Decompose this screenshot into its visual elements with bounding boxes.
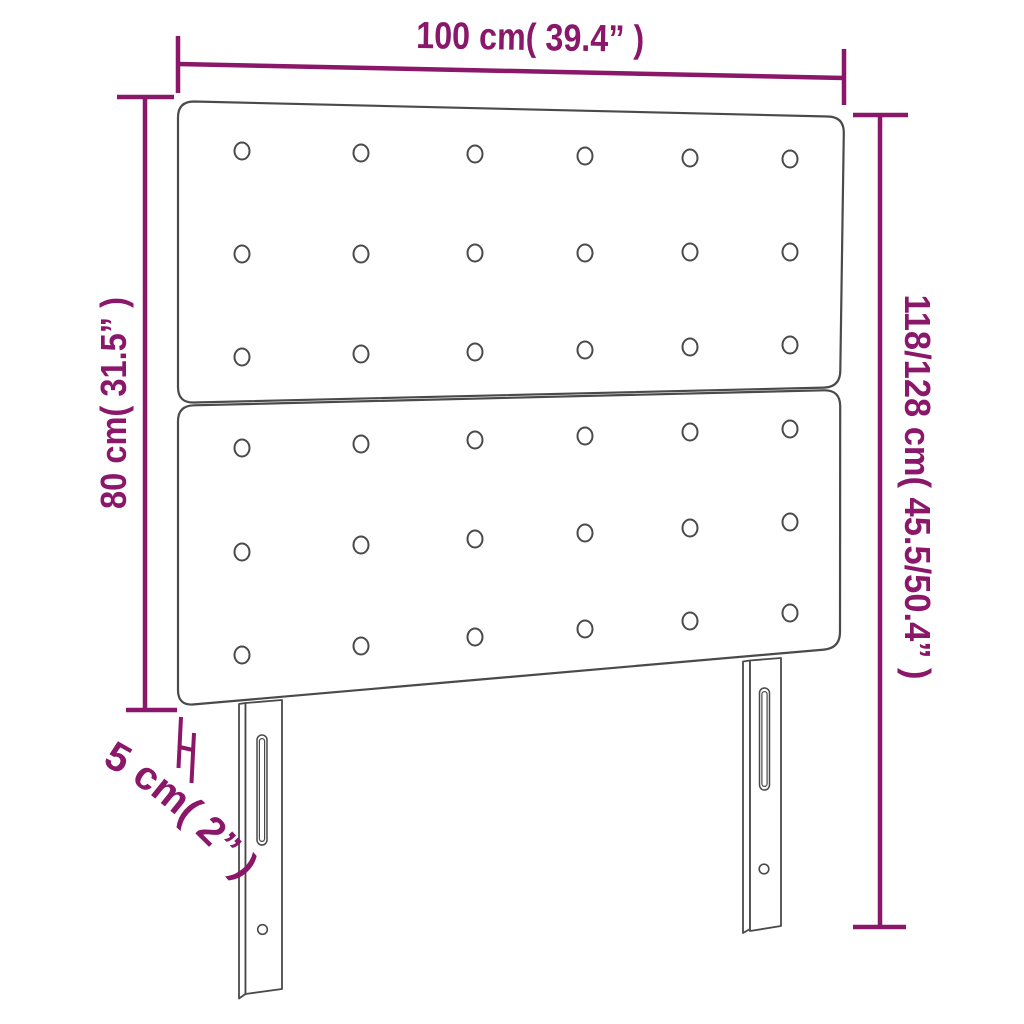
- tufting-button: [235, 349, 250, 366]
- legs-group: [239, 658, 781, 999]
- leg-depth-crossbar: [180, 747, 194, 750]
- tufting-button: [783, 514, 798, 531]
- tufting-button: [683, 424, 698, 441]
- tufting-button: [468, 245, 483, 262]
- right-leg-front-face: [750, 658, 781, 931]
- tufting-button: [235, 647, 250, 664]
- right-leg: [743, 658, 781, 933]
- tufting-button: [354, 145, 369, 162]
- tufting-button: [578, 148, 593, 165]
- tufting-button: [354, 246, 369, 263]
- tufting-button: [235, 544, 250, 561]
- tufting-button: [783, 151, 798, 168]
- tufting-button: [783, 337, 798, 354]
- tufting-button: [354, 638, 369, 655]
- total-height-dimension-label: 118/128 cm( 45.5/50.4” ): [897, 295, 938, 680]
- leg-depth-tick-b: [192, 733, 195, 783]
- tufting-button: [783, 421, 798, 438]
- tufting-button: [683, 150, 698, 167]
- tufting-button: [578, 245, 593, 262]
- board-height-dimension-label: 80 cm( 31.5” ): [93, 297, 134, 509]
- tufting-button: [235, 246, 250, 263]
- headboard-dimension-diagram: 100 cm( 39.4” ) 118/128 cm( 45.5/50.4” )…: [0, 0, 1024, 1024]
- tufting-button: [683, 244, 698, 261]
- tufting-button: [783, 244, 798, 261]
- headboard-group: [178, 102, 844, 705]
- leg-depth-dimension: [179, 717, 195, 783]
- tufting-button: [578, 428, 593, 445]
- tufting-button: [354, 436, 369, 453]
- tufting-button: [468, 531, 483, 548]
- headboard-top-panel: [178, 102, 844, 403]
- tufting-button: [783, 605, 798, 622]
- tufting-button: [683, 613, 698, 630]
- tufting-button: [683, 520, 698, 537]
- tufting-button: [468, 432, 483, 449]
- tufting-button: [235, 440, 250, 457]
- tufting-button: [235, 143, 250, 160]
- tufting-button: [578, 525, 593, 542]
- tufting-button: [468, 146, 483, 163]
- leg-depth-tick-a: [179, 717, 182, 768]
- headboard-bottom-panel: [178, 390, 840, 704]
- diagram-canvas: 100 cm( 39.4” ) 118/128 cm( 45.5/50.4” )…: [0, 0, 1024, 1024]
- width-dimension-line: [178, 64, 844, 78]
- tufting-button: [354, 346, 369, 363]
- tufting-button: [468, 344, 483, 361]
- width-dimension-label: 100 cm( 39.4” ): [416, 15, 645, 61]
- tufting-button: [578, 621, 593, 638]
- tufting-button: [468, 629, 483, 646]
- tufting-button: [578, 342, 593, 359]
- tufting-button: [683, 339, 698, 356]
- tufting-button: [354, 537, 369, 554]
- right-leg-side-face: [743, 661, 750, 934]
